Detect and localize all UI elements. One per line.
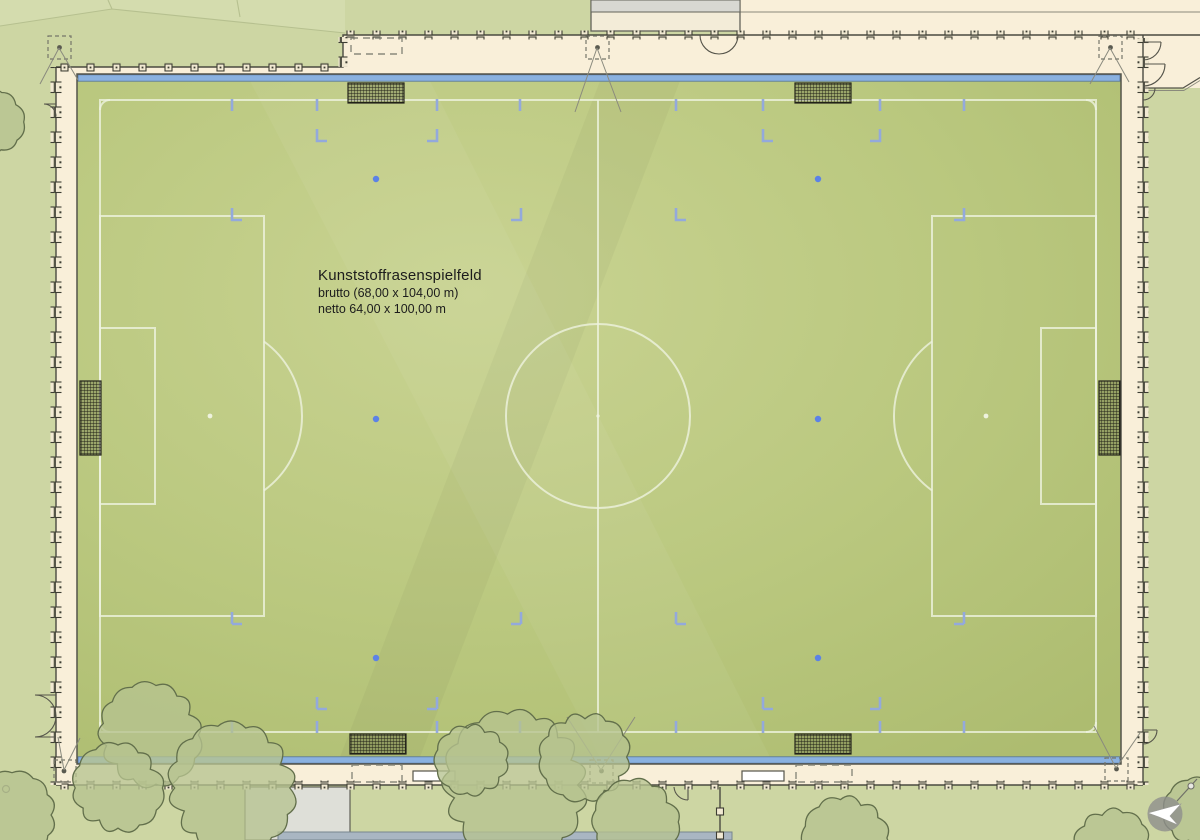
building [591,0,740,31]
right-corridor [1143,35,1200,91]
site-plan-drawing [0,0,1200,840]
goal-right [1099,381,1120,455]
training-goal-top-left [348,83,404,103]
top-walkway-band [740,0,1200,35]
training-goal-bottom-left [350,734,406,754]
training-goal-bottom-right [795,734,851,754]
site-plan-stage: Kunststoffrasenspielfeld brutto (68,00 x… [0,0,1200,840]
training-goal-top-right [795,83,851,103]
bench-right [742,771,784,781]
drain-channel-top [78,75,1120,81]
tree [434,724,508,796]
goal-left [80,381,101,455]
